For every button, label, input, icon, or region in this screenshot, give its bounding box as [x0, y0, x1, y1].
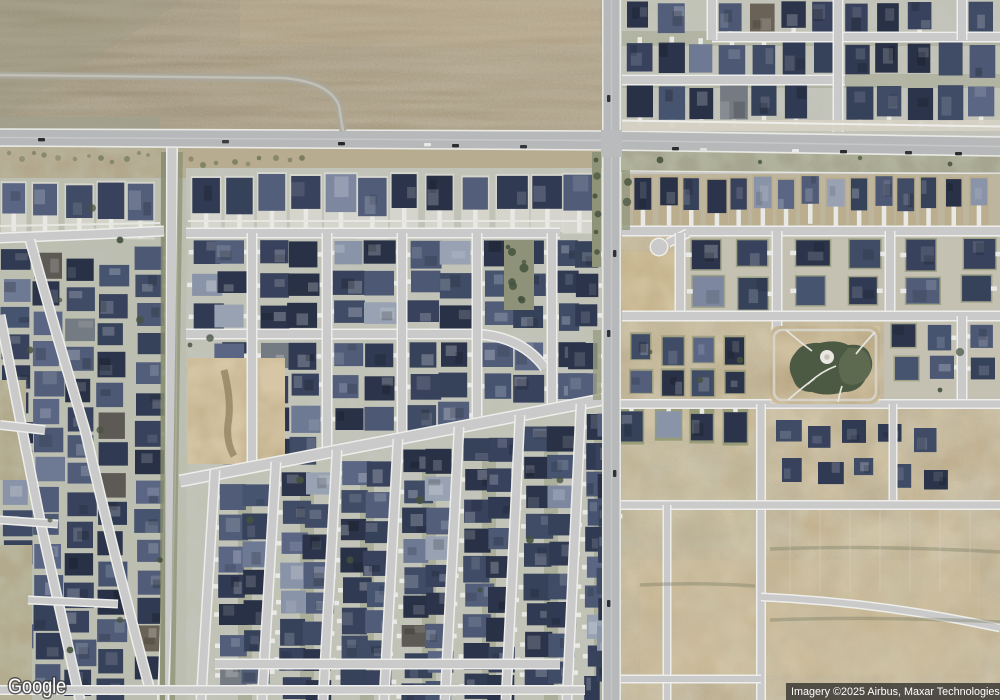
svg-text:Imagery ©2025 Airbus, Maxar Te: Imagery ©2025 Airbus, Maxar Technologies	[791, 686, 1000, 698]
svg-text:Google: Google	[8, 675, 66, 699]
